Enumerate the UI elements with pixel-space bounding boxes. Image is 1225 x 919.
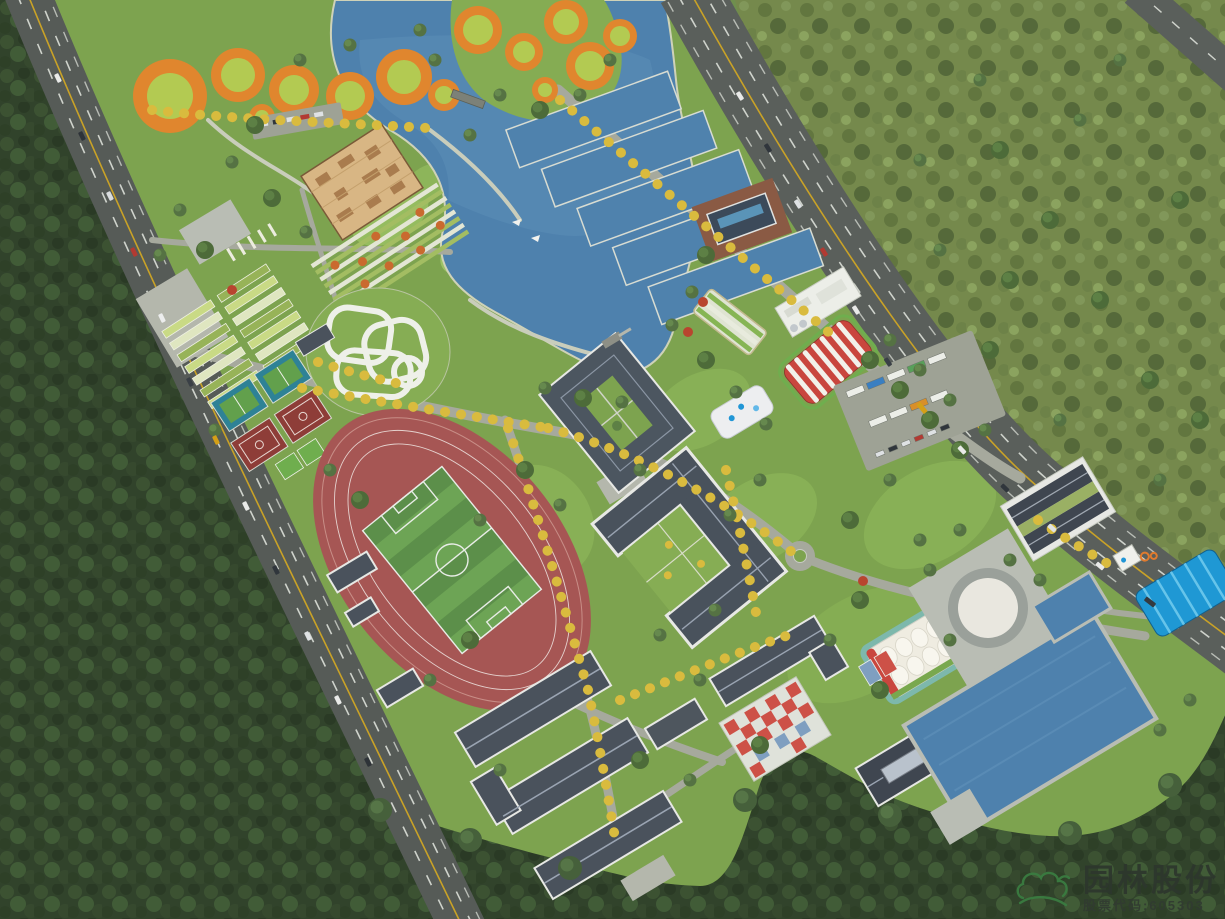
roundabout — [785, 541, 815, 571]
pump-track — [306, 288, 450, 416]
aerial-render: 园林股份 股票代码:605303 — [0, 0, 1225, 919]
scene-svg — [0, 0, 1225, 919]
